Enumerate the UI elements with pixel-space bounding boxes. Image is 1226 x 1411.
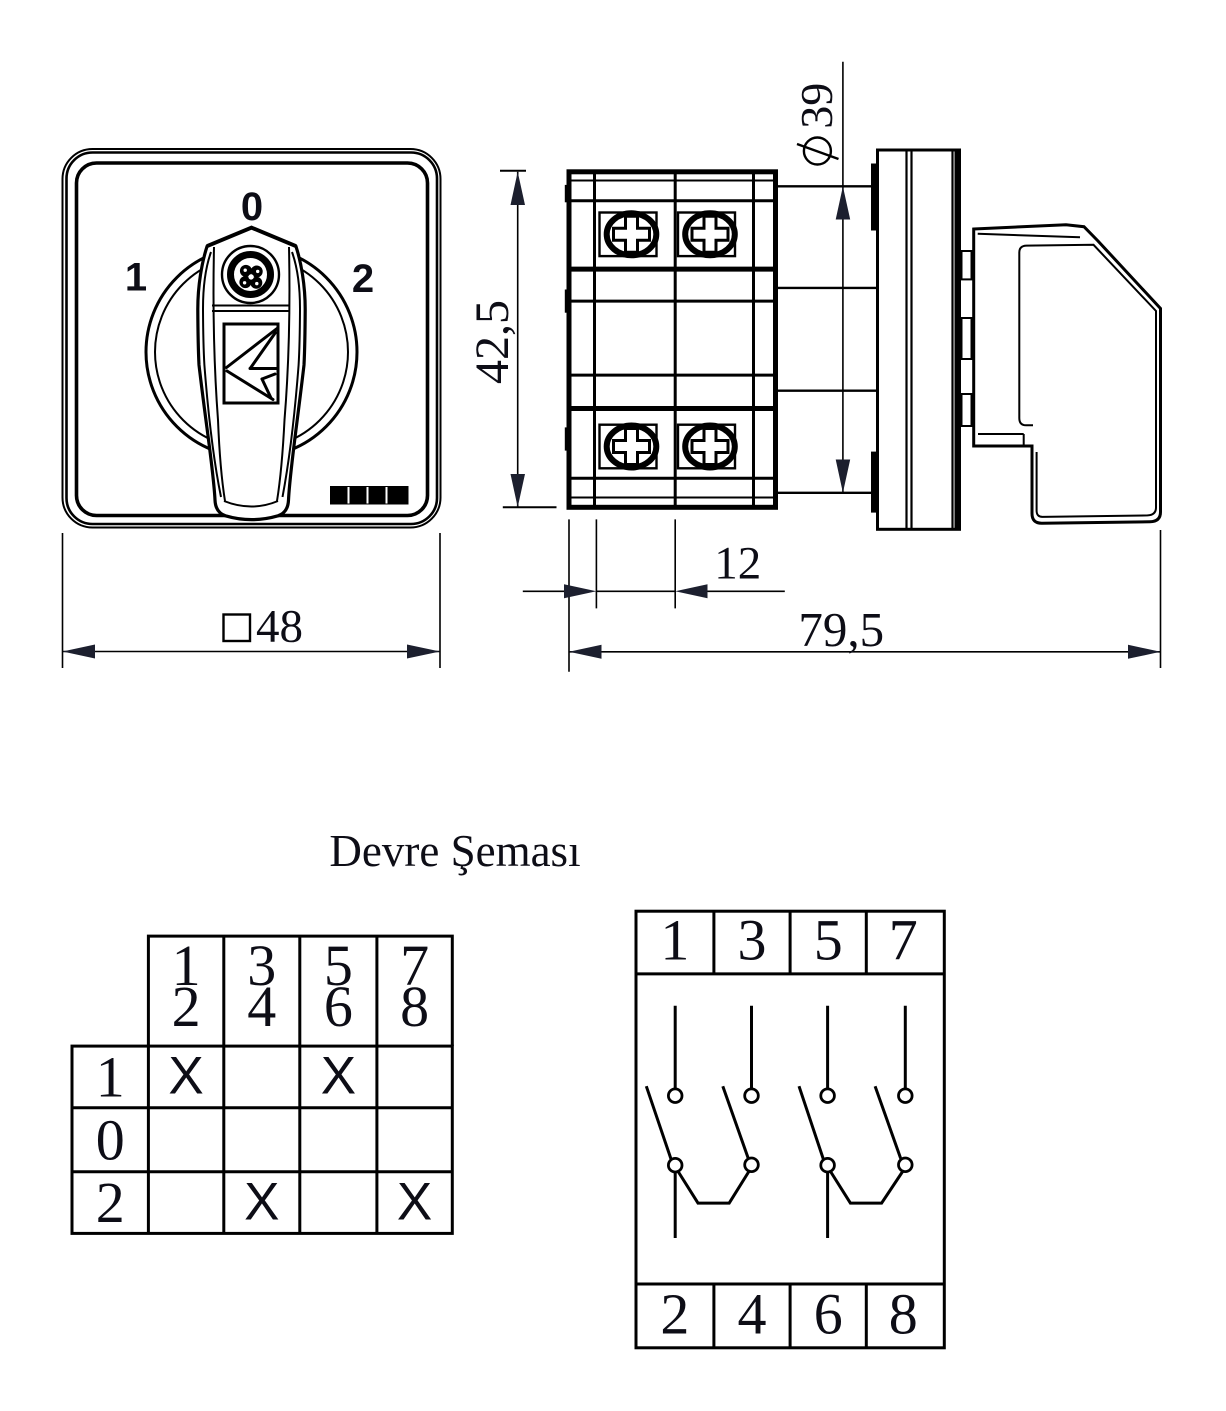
svg-text:X: X: [321, 1047, 356, 1106]
svg-text:12: 12: [714, 538, 761, 590]
svg-text:2: 2: [660, 1282, 689, 1347]
svg-text:48: 48: [256, 601, 303, 653]
svg-text:0: 0: [241, 185, 263, 229]
svg-text:42,5: 42,5: [466, 300, 519, 384]
svg-text:8: 8: [400, 974, 429, 1039]
svg-text:2: 2: [172, 974, 201, 1039]
svg-text:2: 2: [352, 257, 374, 301]
svg-text:6: 6: [324, 974, 353, 1039]
svg-text:7: 7: [889, 908, 918, 973]
svg-text:1: 1: [125, 256, 147, 300]
svg-text:3: 3: [738, 908, 767, 973]
svg-text:39: 39: [791, 83, 842, 129]
svg-text:X: X: [397, 1172, 432, 1231]
svg-text:Devre Şeması: Devre Şeması: [329, 826, 580, 876]
svg-text:5: 5: [814, 908, 843, 973]
svg-text:8: 8: [889, 1282, 918, 1347]
svg-text:4: 4: [738, 1282, 767, 1347]
svg-text:1: 1: [96, 1044, 125, 1109]
svg-text:6: 6: [814, 1282, 843, 1347]
svg-text:X: X: [168, 1047, 203, 1106]
svg-text:0: 0: [96, 1107, 125, 1172]
svg-text:79,5: 79,5: [798, 602, 884, 657]
svg-text:X: X: [244, 1172, 279, 1231]
svg-text:2: 2: [96, 1170, 125, 1235]
svg-text:1: 1: [660, 908, 689, 973]
svg-text:4: 4: [247, 974, 276, 1039]
